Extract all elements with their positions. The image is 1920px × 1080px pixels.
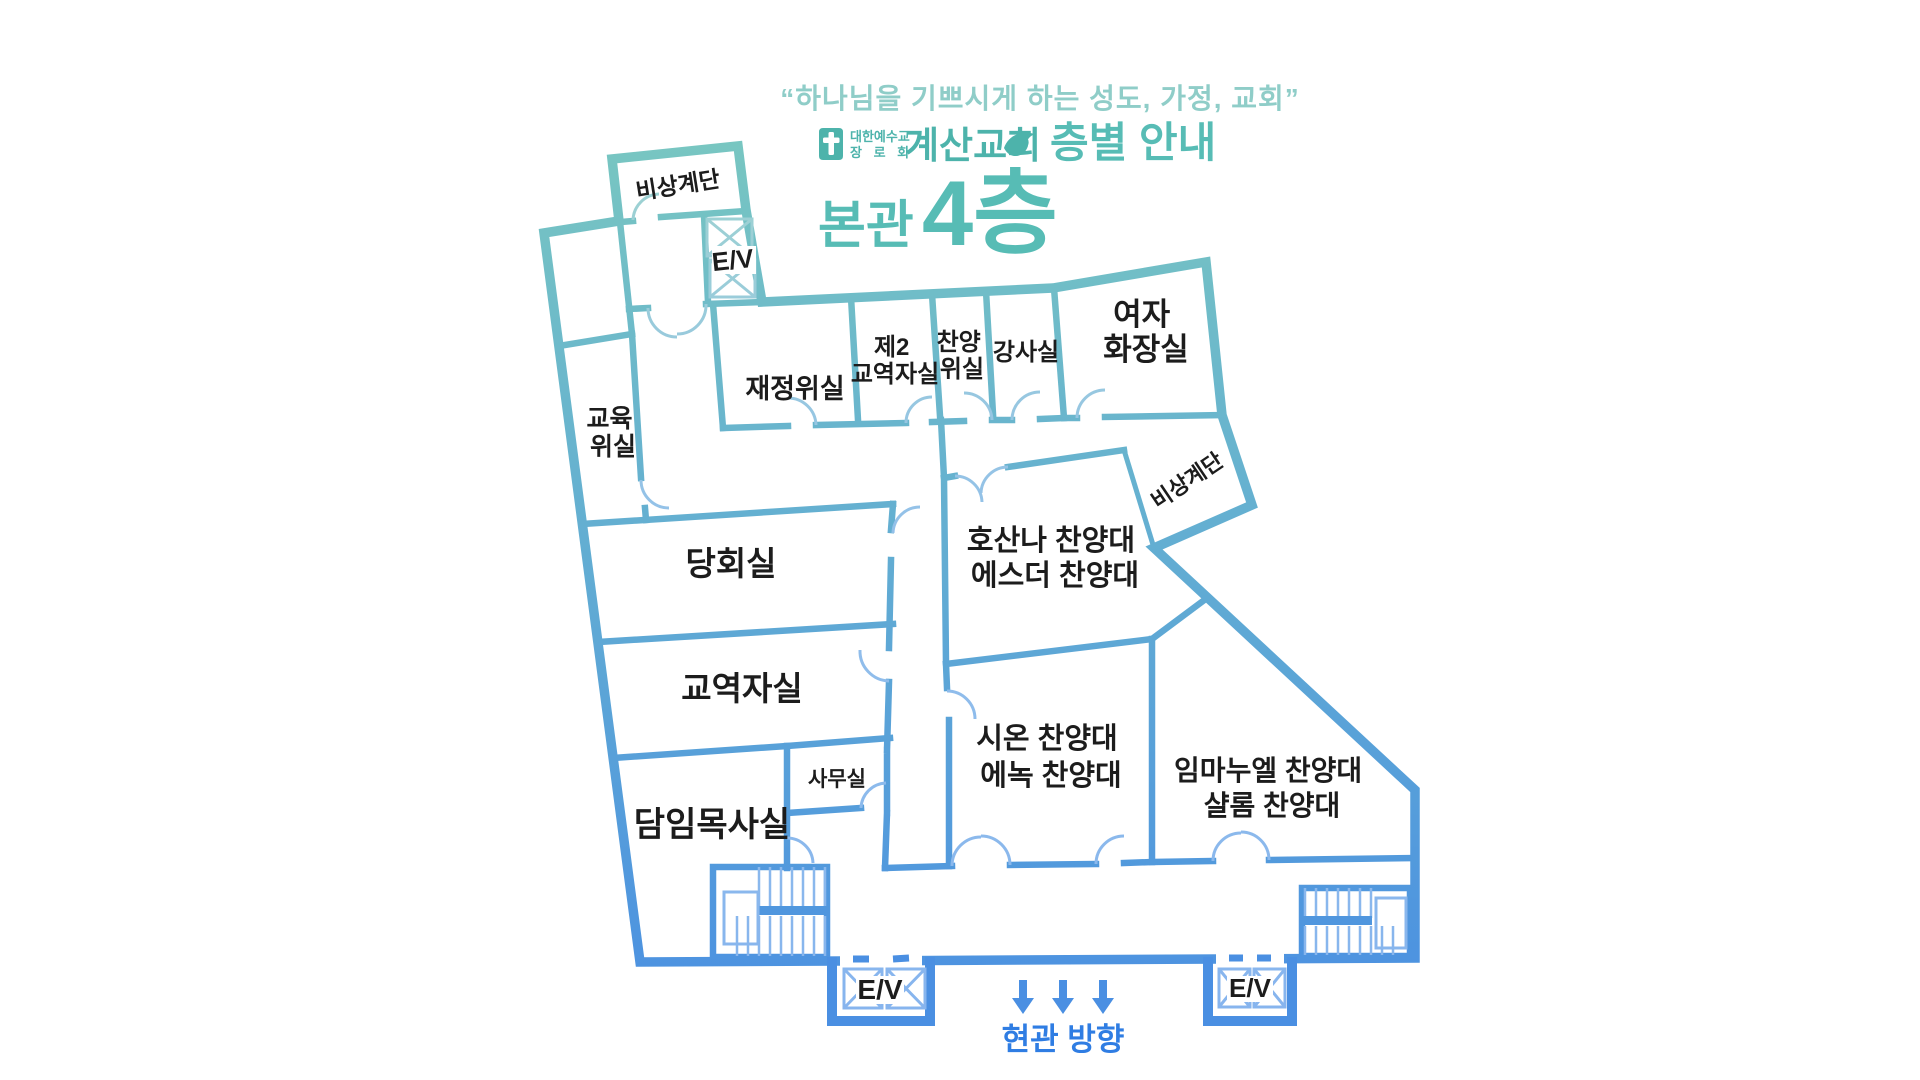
- down-arrow-icon: [1052, 980, 1074, 1014]
- floor-guide-poster: “하나님을 기쁘시게 하는 성도, 가정, 교회” 대한예수교 장 로 회 계산…: [0, 0, 1920, 1080]
- stairs-bottom-left: [713, 867, 827, 957]
- header: “하나님을 기쁘시게 하는 성도, 가정, 교회” 대한예수교 장 로 회 계산…: [780, 83, 1300, 265]
- room-label-zion-enoch: 시온 찬양대 에녹 찬양대: [976, 722, 1126, 792]
- title-building: 본관: [818, 197, 914, 255]
- entrance-direction: 현관 방향: [1002, 980, 1125, 1057]
- room-label-instructor: 강사실: [993, 339, 1059, 366]
- denomination-line2: 장 로 회: [850, 145, 913, 160]
- cross-icon: [819, 128, 843, 160]
- room-label-senior-pastor: 담임목사실: [634, 806, 790, 844]
- elevator-bottom-right: E/V: [1208, 948, 1292, 1021]
- stairs-bottom-right: [1302, 888, 1410, 956]
- elevator-bottom-left-label: E/V: [857, 974, 902, 1005]
- guide-label: 층별 안내: [1050, 119, 1216, 166]
- header-quote: “하나님을 기쁘시게 하는 성도, 가정, 교회”: [780, 83, 1300, 114]
- floor-plan-svg: “하나님을 기쁘시게 하는 성도, 가정, 교회” 대한예수교 장 로 회 계산…: [0, 0, 1920, 1080]
- down-arrow-icon: [1092, 980, 1114, 1014]
- room-label-hosanna-esther: 호산나 찬양대 에스더 찬양대: [967, 524, 1143, 592]
- room-label-ministers-room: 교역자실: [681, 670, 802, 707]
- room-label-womens-restroom: 여자 화장실: [1103, 297, 1189, 367]
- room-label-second-ministers: 제2 교역자실: [851, 334, 939, 388]
- elevator-top-label: E/V: [710, 243, 755, 277]
- room-label-immanuel-shalom: 임마누엘 찬양대 샬롬 찬양대: [1174, 755, 1370, 821]
- elevator-bottom-left: E/V: [832, 948, 930, 1021]
- room-label-session-room: 당회실: [685, 545, 776, 582]
- room-label-emergency-stair-top: 비상계단: [634, 166, 722, 205]
- title-floor: 4층: [922, 163, 1058, 265]
- entrance-direction-label: 현관 방향: [1002, 1022, 1125, 1057]
- room-label-emergency-stair-side: 비상계단: [1147, 448, 1228, 514]
- room-label-praise-committee: 찬양 위실: [937, 329, 988, 383]
- room-label-finance: 재정위실: [745, 374, 844, 404]
- room-label-office: 사무실: [808, 768, 866, 791]
- denomination-line1: 대한예수교: [850, 129, 910, 144]
- elevator-bottom-right-label: E/V: [1229, 973, 1272, 1003]
- down-arrow-icon: [1012, 980, 1034, 1014]
- room-label-education: 교육 위실: [587, 405, 640, 461]
